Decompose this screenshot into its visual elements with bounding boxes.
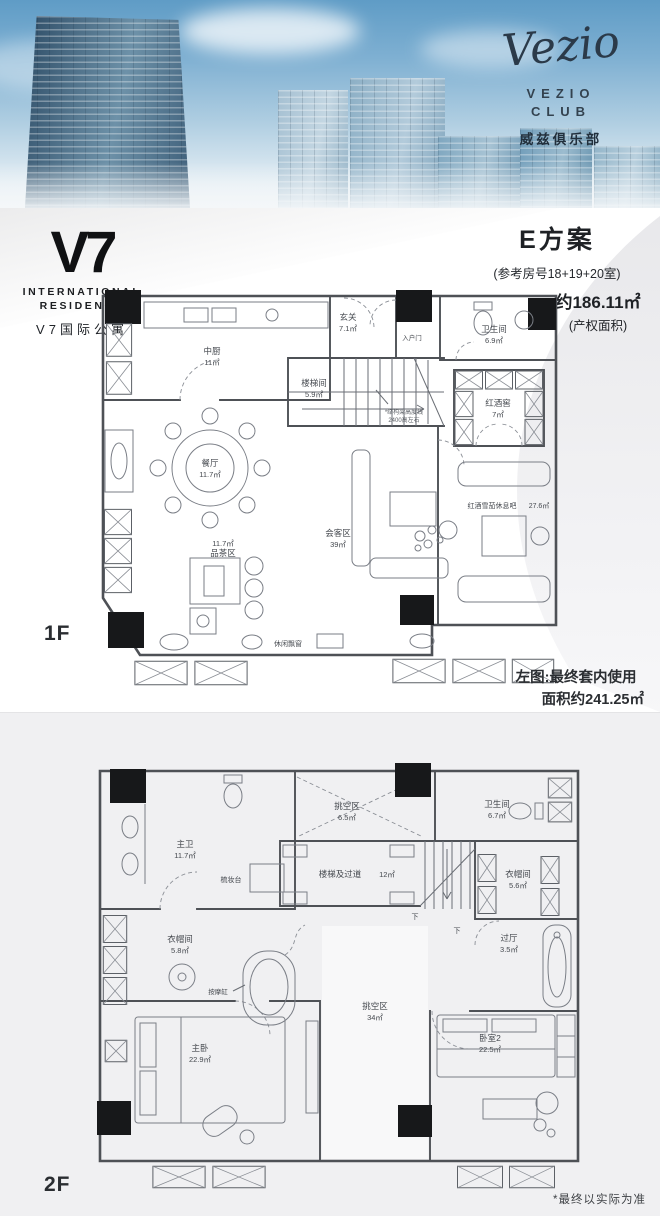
label-down-2: 下 [454,927,461,935]
haze-gradient [0,162,660,208]
room-area-bedroom2: 22.5㎡ [479,1045,502,1054]
cloud [180,8,360,54]
floor2-label: 2F [44,1173,71,1197]
room-label-baywindow: 休闲飘窗 [274,639,302,648]
room-area-hall: 3.5㎡ [500,945,518,954]
vezio-club: CLUB [476,104,646,119]
city-skyline-photo: Vezio VEZIO CLUB 威兹俱乐部 [0,0,660,208]
furniture-1f [105,302,550,650]
vezio-script-logo: Vezio [474,17,647,78]
room-label-bedroom2: 卧室2 [479,1033,501,1043]
room-area-stairwell: 5.9㎡ [305,390,323,399]
label-tub: 按摩缸 [208,987,228,996]
room-label-foyer: 玄关 [339,312,357,322]
room-area-closet2: 5.6㎡ [509,881,527,890]
room-area-dining: 11.7㎡ [199,470,221,479]
room-area-wine-cellar: 7㎡ [492,410,504,419]
room-label-reception: 会客区 [325,528,351,538]
room-area-kitchen: 11㎡ [204,358,220,367]
cabinets-1f [105,324,544,593]
room-label-stairwell: 楼梯间 [301,378,327,388]
room-area-master-bath: 11.7㎡ [174,851,196,860]
room-label-bath2: 卫生间 [484,799,510,809]
room-label-closet1: 衣帽间 [167,934,193,944]
label-down-1: 下 [412,913,419,921]
room-label-kitchen: 中厨 [203,346,221,356]
room-label-stair-corridor: 楼梯及过道 [319,869,362,879]
floor-plan-1f: 中厨 11㎡ 玄关 7.1㎡ 入户门 楼梯间 5.9㎡ *结构梁高度线 2400… [92,278,572,690]
room-area-closet1: 5.8㎡ [171,946,189,955]
terrace-railing-2f [153,1166,555,1188]
room-label-hall: 过厅 [500,933,518,943]
stair-note-line2: 2400高左右 [388,416,419,424]
label-dressing-table: 梳妆台 [221,875,242,884]
room-area-lounge: 27.6㎡ [529,502,550,510]
floor2-section: 主卫 11.7㎡ 梳妆台 衣帽间 5.8㎡ 按摩缸 挑空区 6.5㎡ 楼梯及过道… [0,712,660,1216]
plan-header: E方案 (参考房号18+19+20室) [462,220,652,282]
usable-area-note: 左图:最终套内使用 面积约241.25㎡ [516,668,644,712]
terrace-railing-1f [135,659,554,684]
room-area-void-large: 34㎡ [367,1013,383,1022]
room-label-wine-cellar: 红酒窖 [485,398,511,408]
floor-plan-2f: 主卫 11.7㎡ 梳妆台 衣帽间 5.8㎡ 按摩缸 挑空区 6.5㎡ 楼梯及过道… [85,749,585,1199]
v7-logo: V7 [16,224,148,282]
flyer-page: Vezio VEZIO CLUB 威兹俱乐部 V7 INTERNATIONAL … [0,0,660,1216]
room-label-dining: 餐厅 [201,458,219,468]
vezio-name: VEZIO [476,86,646,101]
room-label-master: 主卧 [191,1043,209,1053]
room-area-void-small: 6.5㎡ [338,813,356,822]
room-area-foyer: 7.1㎡ [339,324,357,333]
room-label-closet2: 衣帽间 [505,869,531,879]
room-area-master: 22.9㎡ [189,1055,212,1064]
vezio-chinese-name: 威兹俱乐部 [476,128,646,148]
room-area-bath2: 6.7㎡ [488,811,506,820]
room-area-tea: 11.7㎡ [212,539,234,548]
floor1-label: 1F [44,622,71,646]
room-label-void-large: 挑空区 [362,1001,388,1011]
usable-area-note-line1: 左图:最终套内使用 [516,668,644,690]
room-label-tea: 品茶区 [210,548,236,558]
disclaimer-text: *最终以实际为准 [553,1191,646,1207]
room-area-reception: 39㎡ [330,540,346,549]
vezio-brand-block: Vezio VEZIO CLUB 威兹俱乐部 [476,24,646,148]
room-label-bath1f: 卫生间 [481,324,507,334]
room-label-lounge: 红酒雪茄休息吧 [468,501,517,510]
room-label-master-bath: 主卫 [176,839,194,849]
usable-area-note-line2: 面积约241.25㎡ [516,690,644,712]
room-area-bath1f: 6.9㎡ [485,336,503,345]
plan-title: E方案 [462,220,652,256]
stair-note-line1: *结构梁高度线 [385,408,423,416]
room-area-stair-corridor: 12㎡ [379,870,395,879]
floor1-section: V7 INTERNATIONAL RESIDENCE V7国际公寓 E方案 (参… [0,208,660,712]
label-entry-door: 入户门 [402,333,422,342]
room-label-void-small: 挑空区 [334,801,360,811]
